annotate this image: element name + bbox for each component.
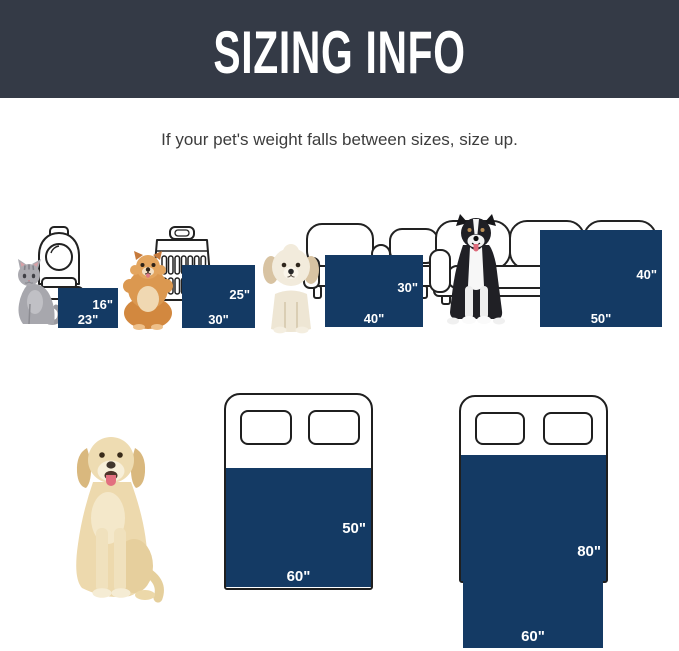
pillow-icon	[240, 410, 292, 445]
width-dimension-label: 50"	[540, 312, 662, 325]
width-dimension-label: 60"	[463, 629, 603, 644]
sizing-info-page: SIZING INFO If your pet's weight falls b…	[0, 0, 679, 651]
blanket-size-30x25: 25" 30"	[182, 265, 255, 328]
height-dimension-label: 80"	[577, 544, 601, 559]
border-collie-icon	[437, 214, 515, 328]
height-dimension-label: 40"	[636, 268, 657, 281]
pillow-icon	[543, 412, 593, 445]
golden-retriever-icon	[58, 426, 164, 608]
width-dimension-label: 30"	[182, 313, 255, 326]
width-dimension-label: 40"	[325, 312, 423, 325]
bed-outline: 80"	[459, 395, 608, 583]
blanket-size-23x16: 16" 23"	[58, 288, 118, 328]
blanket-size-60x80-on-bed: 80"	[461, 455, 606, 581]
bed-outline: 50" 60"	[224, 393, 373, 590]
height-dimension-label: 25"	[229, 288, 250, 301]
subtitle-text: If your pet's weight falls between sizes…	[0, 130, 679, 150]
blanket-size-60x80-overhang: 60"	[463, 581, 603, 648]
white-puppy-icon	[262, 242, 320, 334]
blanket-size-50x40: 40" 50"	[540, 230, 662, 327]
pillow-icon	[308, 410, 360, 445]
cat-icon	[13, 258, 61, 326]
blanket-size-40x30: 30" 40"	[325, 255, 423, 327]
width-dimension-label: 60"	[226, 569, 371, 584]
blanket-size-60x50: 50" 60"	[226, 468, 371, 587]
width-dimension-label: 23"	[58, 313, 118, 326]
page-title: SIZING INFO	[213, 23, 465, 83]
pillow-icon	[475, 412, 525, 445]
header-banner: SIZING INFO	[0, 0, 679, 98]
pomeranian-icon	[122, 250, 174, 330]
height-dimension-label: 30"	[397, 281, 418, 294]
height-dimension-label: 16"	[92, 298, 113, 311]
height-dimension-label: 50"	[342, 521, 366, 536]
